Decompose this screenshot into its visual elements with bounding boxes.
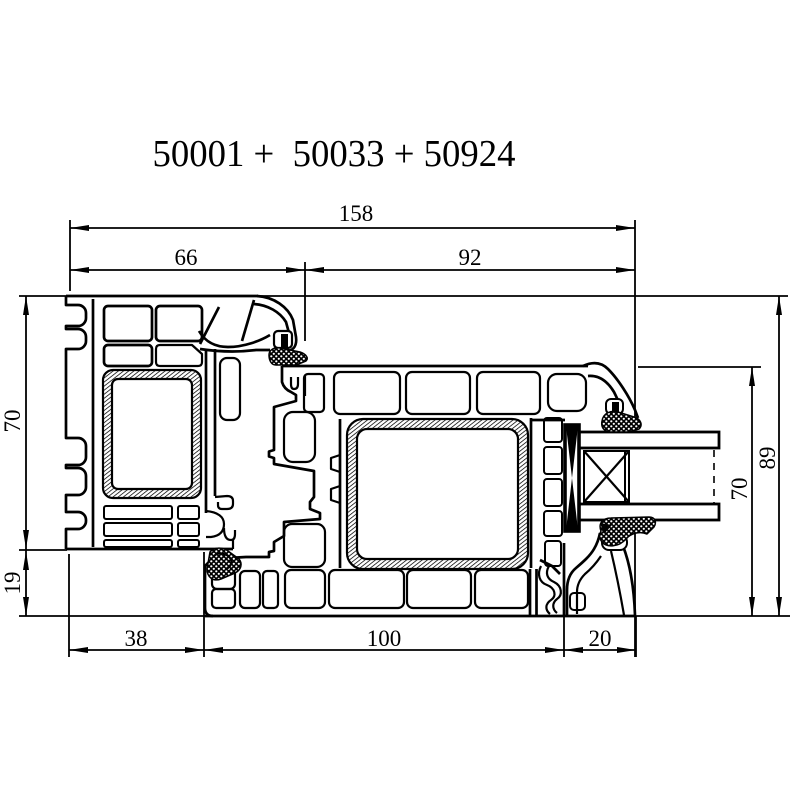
svg-text:38: 38 [125,626,148,651]
svg-text:158: 158 [339,201,374,226]
svg-text:92: 92 [459,245,482,270]
svg-text:20: 20 [589,626,612,651]
svg-text:70: 70 [727,478,752,501]
svg-text:100: 100 [367,626,402,651]
svg-text:19: 19 [0,572,25,595]
svg-text:50001 + 50033 + 50924: 50001 + 50033 + 50924 [153,133,516,175]
svg-text:70: 70 [0,410,25,433]
svg-text:66: 66 [175,245,198,270]
svg-text:89: 89 [755,447,780,470]
